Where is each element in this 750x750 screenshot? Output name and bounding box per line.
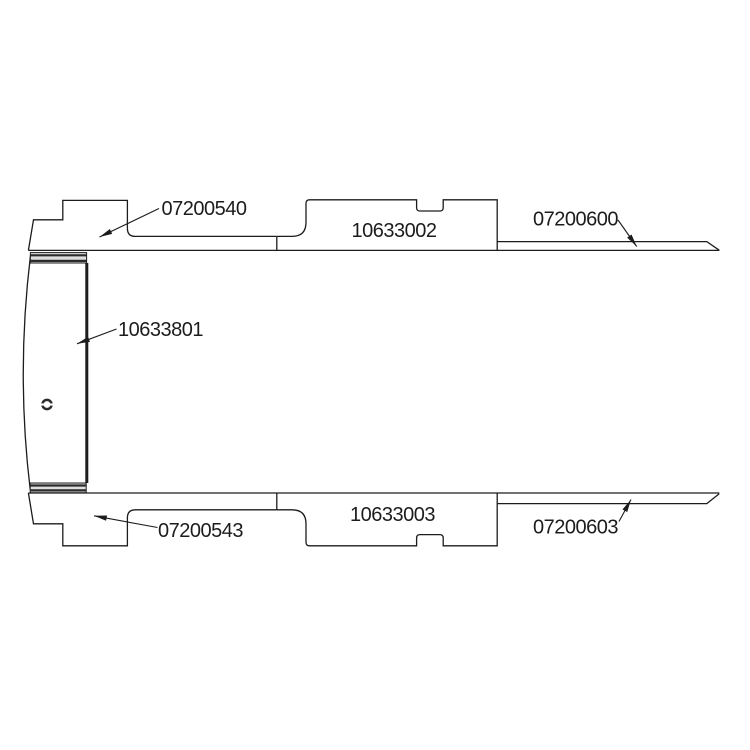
part-label-top-middle-panel: 10633002 [352,220,437,242]
fastener-symbol-icon [41,400,54,409]
bottom-right-strip-outline [497,494,719,504]
part-label-bottom-middle-panel: 10633003 [350,504,435,526]
leader-top-left-panel [100,209,160,238]
top-right-strip-outline [497,242,719,251]
part-label-bottom-right-strip: 07200603 [533,517,618,539]
part-label-top-left-panel: 07200540 [162,198,247,220]
side-panel-left-curve [23,253,31,490]
part-label-bottom-left-panel: 07200543 [158,520,243,542]
leader-side-panel [77,329,117,344]
parts-diagram-canvas: 07200540 10633002 07200600 10633801 0720… [0,0,750,750]
leader-bottom-right-strip [619,500,631,522]
leader-bottom-left-panel [94,516,158,528]
part-label-side-panel: 10633801 [118,319,203,341]
leader-top-right-strip [618,220,637,247]
part-label-top-right-strip: 07200600 [533,209,618,231]
parts-diagram: 07200540 10633002 07200600 10633801 0720… [0,0,750,750]
